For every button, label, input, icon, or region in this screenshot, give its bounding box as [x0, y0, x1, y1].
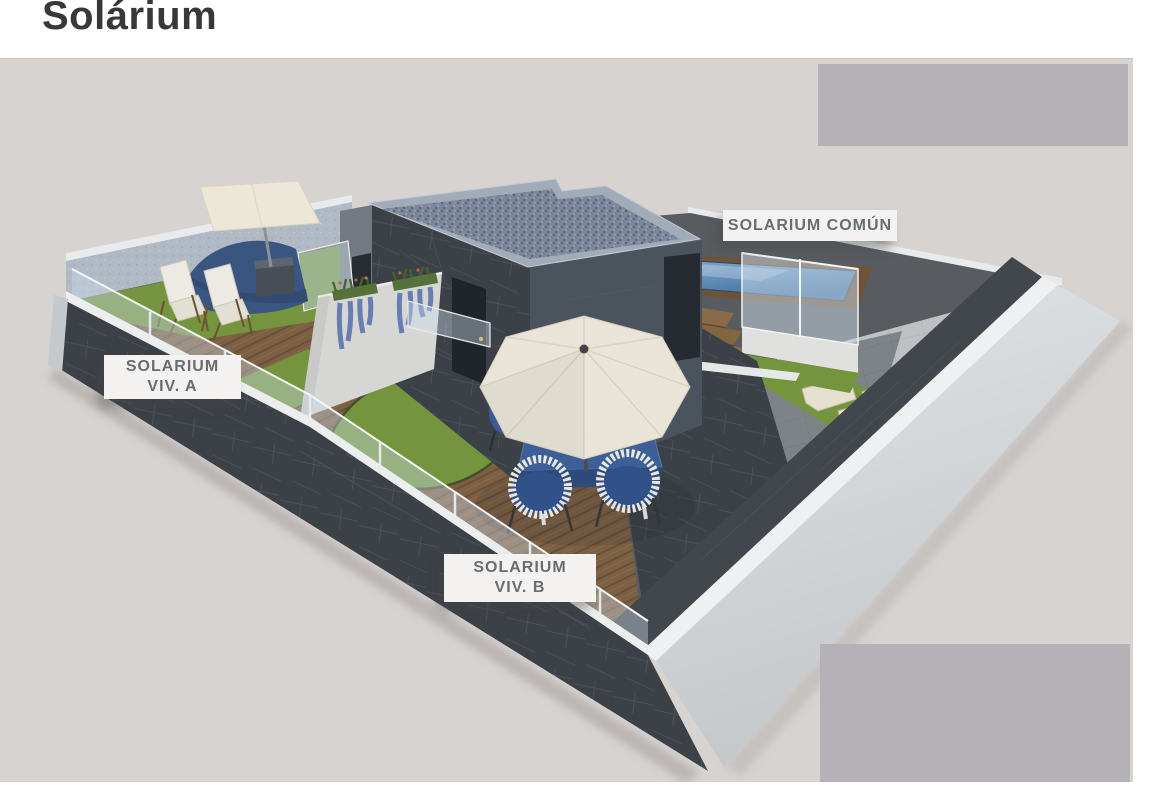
label-solarium-viv-a: SOLARIUM VIV. A — [104, 355, 241, 399]
label-text: VIV. B — [495, 578, 546, 598]
page-title: Solárium — [42, 0, 217, 39]
label-solarium-comun: SOLARIUM COMÚN — [723, 210, 897, 241]
placeholder-block-bottom — [820, 644, 1130, 782]
label-text: SOLARIUM — [126, 357, 219, 377]
label-text: VIV. A — [147, 377, 197, 397]
building-door-right — [664, 253, 700, 363]
render-figure: SOLARIUM COMÚN SOLARIUM VIV. A SOLARIUM … — [0, 58, 1133, 782]
label-text: SOLARIUM COMÚN — [728, 216, 892, 236]
page: Solárium — [0, 0, 1170, 785]
label-text: SOLARIUM — [473, 558, 566, 578]
label-solarium-viv-b: SOLARIUM VIV. B — [444, 554, 596, 602]
placeholder-block-top — [818, 64, 1128, 146]
